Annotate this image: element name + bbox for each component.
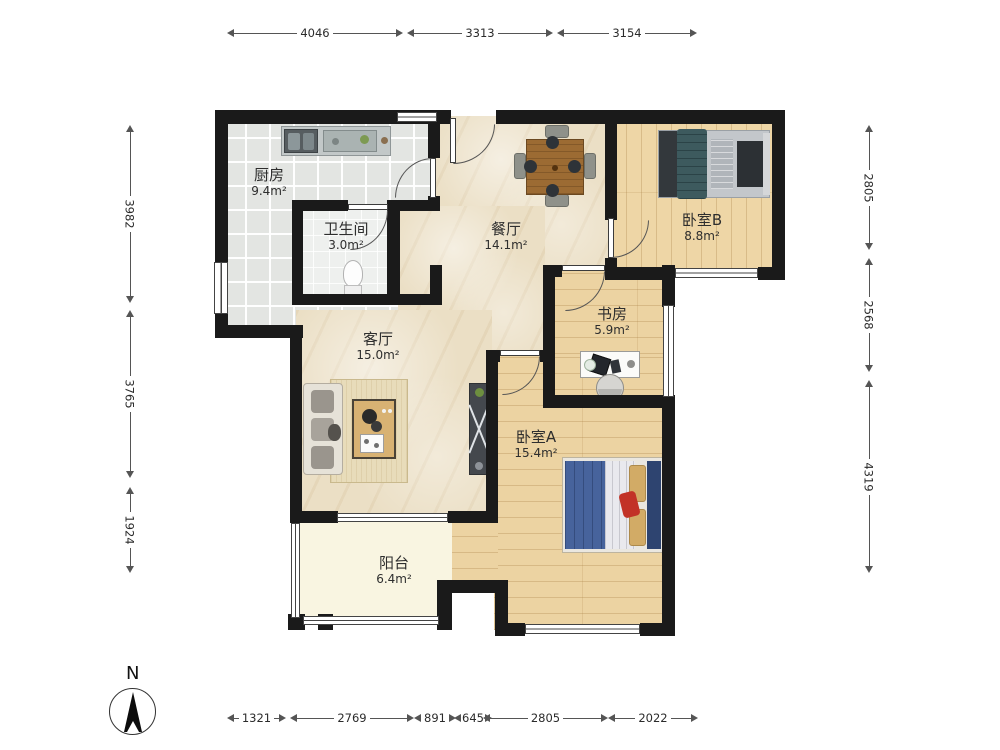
dim-bottom-3: 891 [414,711,454,725]
arrowhead-icon [546,29,553,37]
arrowhead-icon [690,29,697,37]
window [397,112,437,122]
bed-b [658,130,770,198]
wall-segment [496,110,785,124]
room-area: 8.8m² [666,229,738,243]
wall-segment [543,265,562,277]
room-area: 5.9m² [576,323,648,337]
wall-segment [662,395,675,636]
dim-label: 2805 [862,173,876,202]
wall-segment [302,511,338,523]
room-area: 15.4m² [500,446,572,460]
dim-label: 4319 [862,462,876,491]
dim-label: 2568 [862,300,876,329]
arrowhead-icon [279,714,286,722]
room-name: 阳台 [358,554,430,572]
room-label-living: 客厅 15.0m² [342,330,414,362]
room-name: 餐厅 [470,220,542,238]
arrowhead-icon [126,296,134,303]
room-area: 9.4m² [233,184,305,198]
wall-segment [543,277,555,408]
arrowhead-icon [601,714,608,722]
balcony-railing [291,523,300,618]
window [663,305,674,397]
dim-label: 891 [421,711,449,725]
room-area: 15.0m² [342,348,414,362]
balcony-railing [303,616,439,625]
bed-a-blanket [565,461,605,549]
wall-segment [495,623,525,636]
dim-top-1: 4046 [227,26,403,40]
arrowhead-icon [691,714,698,722]
bed-a [562,457,664,553]
room-label-dining: 餐厅 14.1m² [470,220,542,252]
room-label-kitchen: 厨房 9.4m² [233,166,305,198]
wall-segment [430,265,442,305]
wall-segment [387,200,400,305]
room-name: 书房 [576,305,648,323]
dim-left-1: 3982 [122,125,138,303]
dim-bottom-5: 2805 [483,711,608,725]
room-area: 6.4m² [358,572,430,586]
room-area: 14.1m² [470,238,542,252]
dining-set [512,125,600,209]
room-label-balcony: 阳台 6.4m² [358,554,430,586]
wall-segment [486,350,498,517]
kitchen-sink [284,129,318,153]
dim-bottom-4: 645 [454,711,483,725]
dim-label: 2769 [334,711,369,725]
room-label-bathroom: 卫生间 3.0m² [310,220,382,252]
arrowhead-icon [407,714,414,722]
arrowhead-icon [407,29,414,37]
dim-right-1: 2805 [861,125,877,250]
room-label-study: 书房 5.9m² [576,305,648,337]
arrowhead-icon [865,365,873,372]
arrowhead-icon [126,310,134,317]
wall-segment [605,258,617,280]
dim-left-3: 1924 [122,487,138,573]
dim-label: 3313 [462,26,497,40]
window [214,262,228,314]
dim-label: 3154 [609,26,644,40]
arrowhead-icon [126,487,134,494]
wall-segment [772,110,785,280]
window [675,268,758,278]
arrowhead-icon [865,380,873,387]
arrowhead-icon [126,125,134,132]
dim-label: 3765 [123,379,137,408]
throw-pillow [328,424,341,441]
plant-icon [360,135,369,144]
room-area: 3.0m² [310,238,382,252]
arrowhead-icon [396,29,403,37]
sofa-cushion [311,390,334,413]
arrowhead-icon [865,258,873,265]
room-name: 厨房 [233,166,305,184]
dim-top-2: 3313 [407,26,553,40]
arrowhead-icon [865,243,873,250]
window [525,624,640,634]
compass-north-label: N [126,663,139,684]
north-needle-notch [127,721,139,732]
arrowhead-icon [608,714,615,722]
arrowhead-icon [290,714,297,722]
bed-b-blanket [677,129,707,199]
dim-label: 2022 [635,711,670,725]
dim-bottom-2: 2769 [290,711,414,725]
arrowhead-icon [454,714,461,722]
arrowhead-icon [227,29,234,37]
dining-chair [584,153,596,179]
room-label-bedroom-a: 卧室A 15.4m² [500,428,572,460]
dim-right-2: 2568 [861,258,877,372]
arrowhead-icon [414,714,421,722]
sofa-cushion [311,446,334,469]
wall-segment [290,331,302,523]
wall-segment [215,110,228,262]
dim-label: 1924 [123,515,137,544]
floor-plan-canvas: 厨房 9.4m² 卫生间 3.0m² 餐厅 14.1m² 卧室B 8.8m² 书… [0,0,1000,750]
wall-segment [605,110,617,220]
arrowhead-icon [483,714,490,722]
arrowhead-icon [126,566,134,573]
tray [360,434,384,453]
dim-label: 2805 [528,711,563,725]
dim-label: 645 [461,711,485,725]
wall-segment [543,395,675,408]
dim-label: 1321 [239,711,274,725]
dim-bottom-1: 1321 [227,711,286,725]
arrowhead-icon [865,566,873,573]
room-name: 卧室B [666,211,738,229]
dim-bottom-6: 2022 [608,711,698,725]
wall-segment [292,200,303,305]
dim-label: 4046 [297,26,332,40]
kitchen-counter [281,126,391,156]
wall-segment [292,294,442,305]
wall-segment [540,350,555,362]
dim-label: 3982 [123,199,137,228]
room-label-bedroom-b: 卧室B 8.8m² [666,211,738,243]
coffee-table [352,399,396,459]
kitchen-cooktop [323,130,377,152]
room-name: 客厅 [342,330,414,348]
room-name: 卧室A [500,428,572,446]
dining-table [526,139,584,195]
balcony-slider-window [337,513,448,522]
arrowhead-icon [227,714,234,722]
dim-left-2: 3765 [122,310,138,478]
arrowhead-icon [557,29,564,37]
arrowhead-icon [865,125,873,132]
room-name: 卫生间 [310,220,382,238]
sofa [303,383,343,475]
dim-right-3: 4319 [861,380,877,573]
dim-top-3: 3154 [557,26,697,40]
arrowhead-icon [126,471,134,478]
plant-icon [475,388,484,397]
bedroom-a-floor-alcove [448,517,498,585]
